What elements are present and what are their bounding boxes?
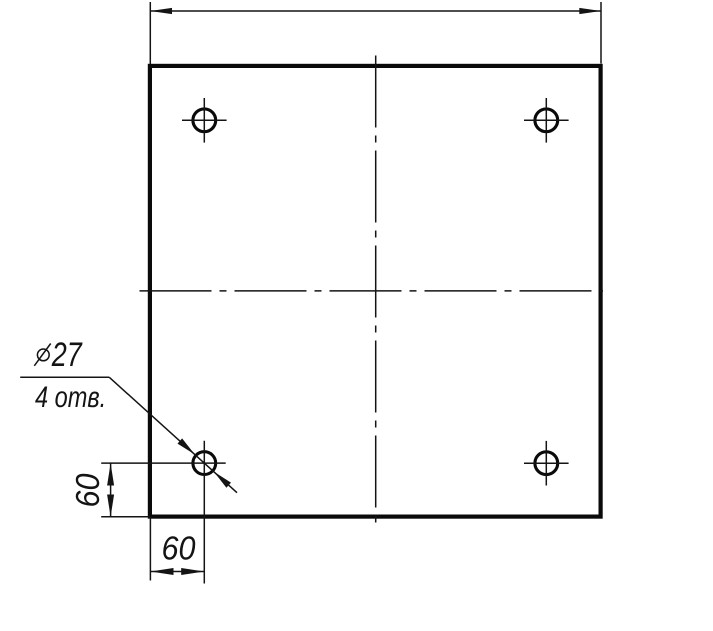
svg-text:27: 27 — [51, 336, 83, 374]
svg-text:60: 60 — [69, 473, 106, 508]
svg-text:60: 60 — [162, 530, 197, 567]
svg-text:4 отв.: 4 отв. — [35, 380, 106, 413]
